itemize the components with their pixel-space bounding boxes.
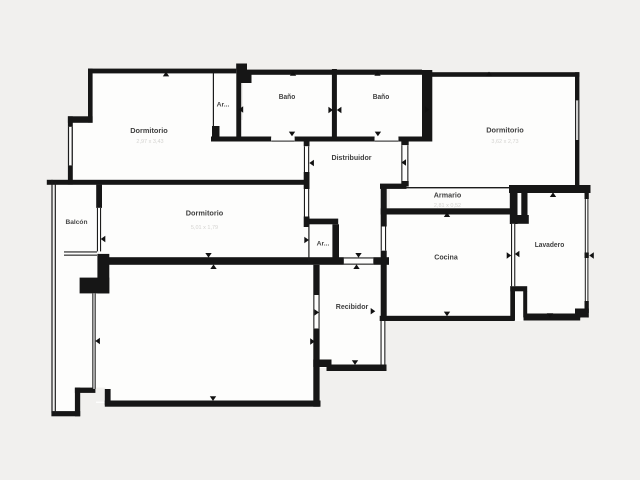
svg-text:2,81 x 0,52: 2,81 x 0,52 — [434, 203, 461, 209]
svg-text:2,97 x 3,43: 2,97 x 3,43 — [136, 139, 163, 145]
svg-text:Dormitorio: Dormitorio — [130, 126, 168, 135]
svg-text:Dormitorio: Dormitorio — [486, 126, 524, 135]
svg-text:3,62 x 2,73: 3,62 x 2,73 — [491, 139, 518, 145]
svg-text:Ar...: Ar... — [317, 241, 330, 248]
svg-text:Dormitorio: Dormitorio — [186, 209, 224, 218]
svg-text:Armario: Armario — [434, 191, 462, 200]
svg-text:Balcón: Balcón — [66, 219, 88, 226]
svg-text:5,01 x 1,79: 5,01 x 1,79 — [191, 225, 218, 231]
svg-text:Baño: Baño — [373, 92, 390, 101]
svg-text:Recibidor: Recibidor — [336, 302, 369, 311]
svg-text:Cocina: Cocina — [434, 253, 458, 262]
svg-text:Lavadero: Lavadero — [535, 240, 565, 249]
svg-text:Baño: Baño — [279, 92, 296, 101]
svg-text:Ar...: Ar... — [217, 102, 230, 109]
svg-text:Distribuidor: Distribuidor — [332, 153, 372, 162]
